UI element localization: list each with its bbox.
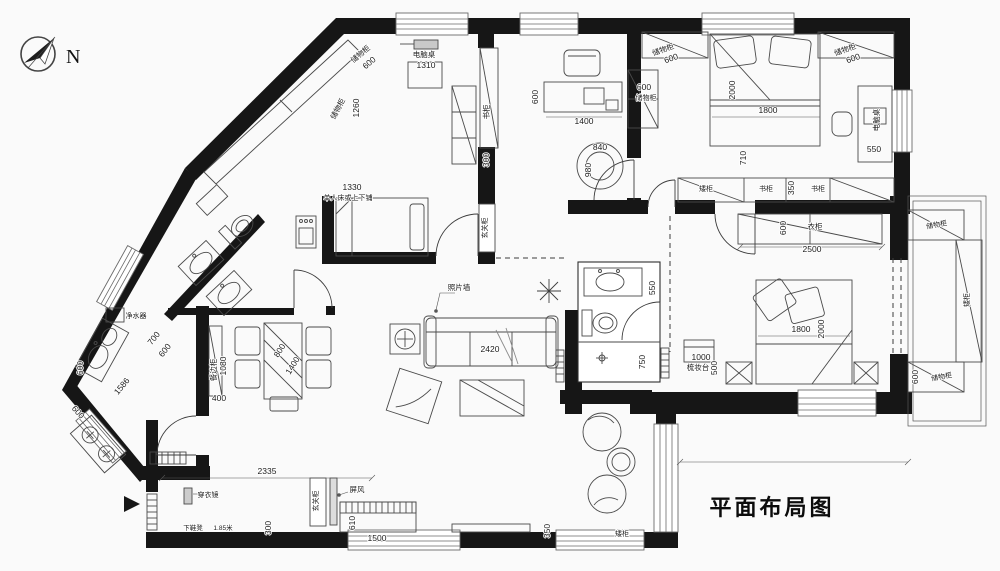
single-bed (336, 198, 428, 256)
floor-plan-drawing: N 平面布局图 储物柜600电脑桌1310储物柜1260书柜300玄关柜6001… (0, 0, 1000, 571)
desk-chair (832, 112, 852, 136)
furniture-label: 储物柜 (328, 96, 348, 121)
dining-chair (306, 327, 331, 355)
dim-label: 1500 (368, 533, 387, 543)
dining-chair (235, 327, 260, 355)
master-bedroom (684, 214, 882, 384)
dim-label: 840 (593, 142, 607, 152)
plan-title: 平面布局图 (709, 495, 834, 520)
window-bottom-1 (348, 530, 460, 550)
window-master-bottom (798, 390, 876, 416)
leader-photo-wall (436, 293, 455, 310)
dressing-mirror (184, 488, 192, 504)
dim-label: 350 (786, 181, 796, 195)
pillow (768, 36, 811, 69)
furniture-label: 矮柜 (962, 293, 971, 307)
dim-label: 300 (263, 521, 273, 535)
dim-label: 750 (637, 355, 647, 369)
north-label: N (66, 46, 80, 68)
screen-partition (330, 478, 337, 525)
furniture-label: 储物柜 (930, 370, 952, 383)
furniture-label: 储物柜 (925, 218, 947, 231)
dim-label: 1.85米 (213, 523, 233, 532)
dim-label: 550 (647, 281, 657, 295)
walls (62, 18, 912, 548)
north-compass: N (21, 37, 80, 71)
dim-label: 1260 (351, 98, 361, 117)
entry-arrow-icon (124, 496, 140, 512)
window-top-3 (702, 13, 794, 35)
pillow (784, 286, 825, 324)
ottoman (386, 368, 441, 423)
dim-label: 350 (542, 524, 552, 538)
dim-label: 400 (212, 393, 226, 403)
balcony (908, 196, 986, 426)
plant-icon (537, 279, 561, 303)
dim-label: 710 (738, 151, 748, 165)
dim-label: 600 (778, 221, 788, 235)
pillow (713, 35, 757, 68)
sofa (426, 318, 556, 366)
dim-label: 1400 (575, 116, 594, 126)
dim-label: 1800 (759, 105, 778, 115)
dim-label: 980 (583, 163, 593, 177)
furniture-label: 梳妆台 (687, 362, 710, 372)
toilet (227, 211, 257, 241)
round-chair (583, 413, 621, 451)
furniture-label: 照片墙 (448, 282, 471, 292)
tv (452, 524, 530, 532)
piano-keys (340, 502, 416, 513)
furniture-label: 单人床或上下铺 (324, 193, 373, 202)
dim-label: 1310 (417, 60, 436, 70)
dim-label: 600 (156, 341, 173, 359)
printer-icon (414, 40, 438, 49)
furniture-label: 矮柜 (615, 529, 629, 538)
door-hall (648, 180, 675, 207)
window-top-2 (520, 13, 578, 35)
furniture-label: 储物柜 (636, 93, 657, 102)
furniture-label: 衣柜 (808, 221, 823, 231)
furniture-label: 书柜 (481, 104, 491, 119)
dim-label: 610 (347, 516, 357, 530)
pillow (752, 278, 797, 322)
phone-icon (606, 100, 618, 110)
round-side-table (607, 448, 635, 476)
dim-label: 2000 (816, 319, 826, 338)
dim-label: 500 (709, 361, 719, 375)
window-living-right (654, 424, 678, 532)
dim-label: 1330 (343, 182, 362, 192)
dim-label: 600 (910, 370, 920, 384)
furniture-label: 书柜 (759, 184, 773, 193)
dim-label: 1080 (218, 356, 228, 375)
dim-label: 2000 (727, 80, 737, 99)
furniture-label: 矮柜 (699, 184, 713, 193)
furniture-label: 净水器 (126, 311, 147, 320)
bathroom2 (578, 262, 669, 382)
dashed-walls (496, 216, 901, 354)
desk-chair (564, 50, 600, 76)
window-bottom-2 (556, 530, 644, 550)
dim-label: 1800 (792, 324, 811, 334)
furniture-label: 电脑桌 (871, 108, 881, 131)
door-master (715, 214, 755, 254)
dim-label: 2335 (258, 466, 277, 476)
dim-label: 300 (481, 153, 491, 167)
pillow (410, 204, 424, 250)
furniture-label: 下鞋凳 (183, 523, 203, 532)
dim-label: 2420 (481, 344, 500, 354)
window-top-1 (396, 13, 468, 35)
monitor-icon (584, 88, 604, 104)
window-right (892, 90, 912, 152)
dim-label: 600 (530, 90, 540, 104)
furniture-label: 穿衣镜 (198, 490, 219, 499)
dim-label: 550 (867, 144, 881, 154)
dim-label: 600 (75, 361, 85, 375)
furniture-label: 玄关柜 (311, 491, 320, 512)
dim-label: 2500 (803, 244, 822, 254)
floor-plan-page: N 平面布局图 储物柜600电脑桌1310储物柜1260书柜300玄关柜6001… (0, 0, 1000, 571)
door-study1 (436, 214, 478, 256)
radiator-icon (661, 348, 669, 378)
desk (544, 82, 622, 112)
dimension-lines (159, 117, 911, 497)
dim-label: 1586 (112, 375, 132, 396)
dining-chair (306, 360, 331, 388)
dim-label: 1000 (692, 352, 711, 362)
furniture-label: 玄关柜 (480, 218, 489, 239)
dining-chair (235, 360, 260, 388)
bathroom1 (178, 185, 316, 316)
furniture-label: 电脑桌 (413, 49, 436, 59)
dim-label: 700 (145, 329, 162, 347)
round-chair (588, 475, 626, 513)
furniture-label: 书柜 (811, 184, 825, 193)
door-bathroom1 (294, 270, 332, 308)
furniture-label: 屏风 (350, 485, 365, 494)
dim-label: 600 (637, 82, 651, 92)
furniture-label: 餐边柜 (208, 358, 218, 381)
door-kitchen (157, 416, 196, 455)
shelf (196, 185, 227, 216)
